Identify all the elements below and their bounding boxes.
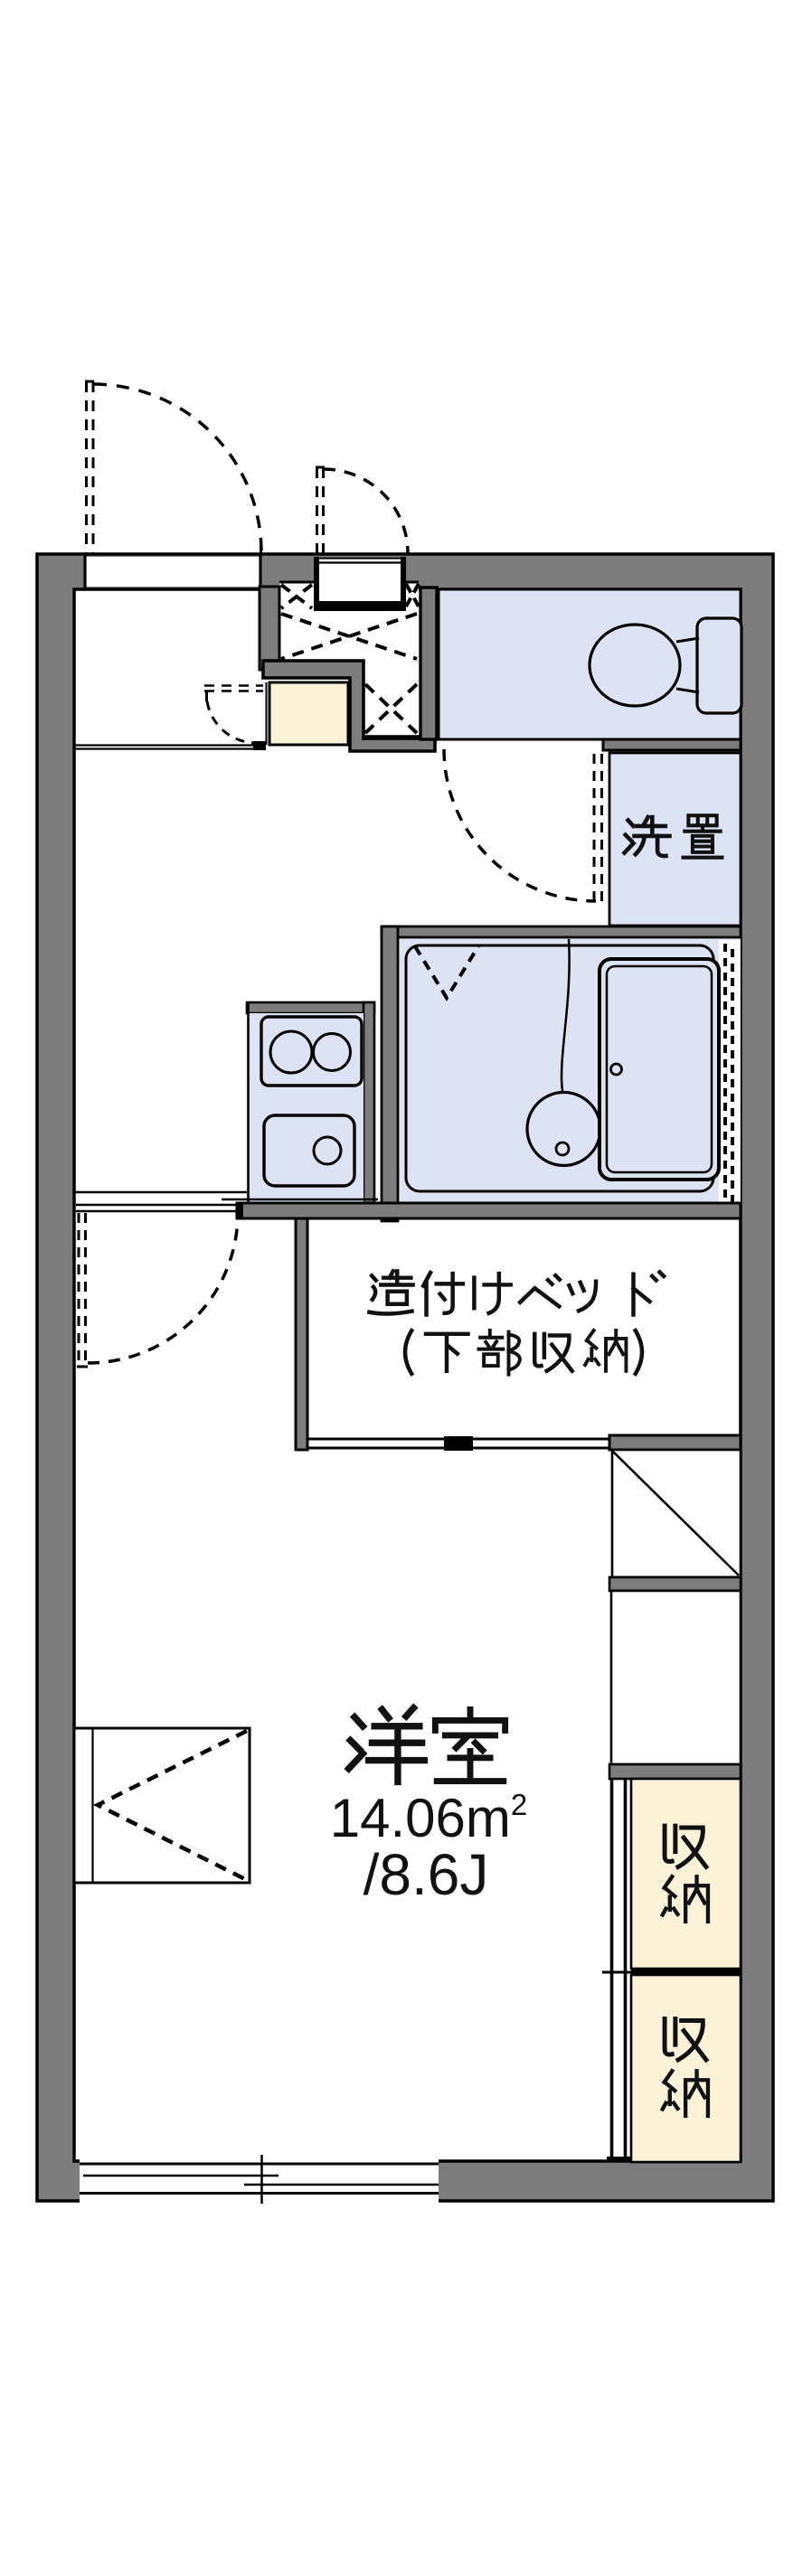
svg-text:14.06m2: 14.06m2: [330, 1788, 528, 1848]
svg-text:/8.6J: /8.6J: [364, 1842, 489, 1907]
